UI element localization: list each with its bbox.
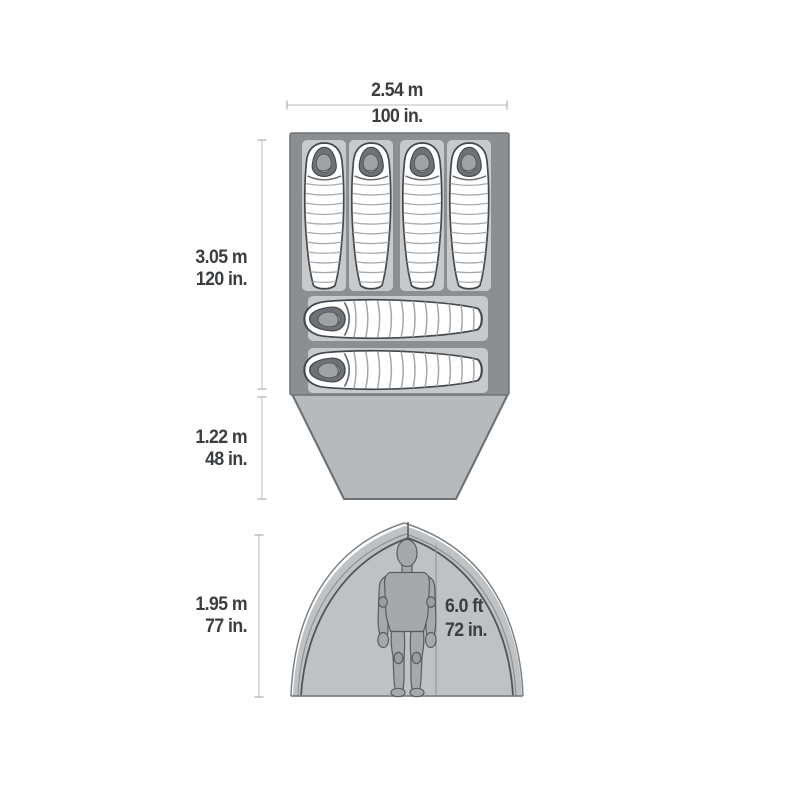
standing-height-inches-label: 72 in.	[445, 621, 487, 640]
tent-spec-diagram: 2.54 m 100 in. 3.05 m 120 in. 1.22 m 48 …	[0, 0, 800, 800]
person-left-hand	[378, 633, 389, 648]
person-right-elbow-joint	[427, 597, 436, 607]
sleeping-bag	[450, 143, 489, 289]
vestibule-dimension-line	[258, 397, 267, 499]
vestibule-imperial-label: 48 in.	[145, 450, 247, 469]
person-right-foot	[410, 688, 424, 696]
person-left-foot	[391, 688, 405, 696]
vestibule	[292, 394, 508, 499]
person-right-hand	[426, 633, 437, 648]
sleeping-bag	[304, 300, 481, 339]
sleeping-bag	[305, 143, 344, 289]
standing-height-feet-label: 6.0 ft	[445, 597, 483, 616]
length-metric-label: 3.05 m	[145, 248, 247, 267]
length-dimension-line	[258, 140, 267, 389]
person-torso	[385, 573, 430, 632]
person-left-knee-joint	[394, 652, 403, 663]
floor-plan-view	[290, 133, 509, 499]
length-imperial-label: 120 in.	[145, 270, 247, 289]
front-elevation-view	[291, 522, 523, 697]
width-metric-label: 2.54 m	[323, 81, 472, 100]
width-imperial-label: 100 in.	[323, 107, 472, 126]
person-left-elbow-joint	[379, 597, 388, 607]
sleeping-bag	[352, 143, 391, 289]
person-head	[397, 540, 417, 567]
vestibule-metric-label: 1.22 m	[145, 428, 247, 447]
sleeping-bag	[403, 143, 442, 289]
sleeping-bag	[304, 351, 481, 390]
person-right-knee-joint	[412, 652, 421, 663]
peak-height-dimension-line	[255, 535, 264, 697]
peak-height-metric-label: 1.95 m	[145, 595, 247, 614]
peak-height-imperial-label: 77 in.	[145, 617, 247, 636]
